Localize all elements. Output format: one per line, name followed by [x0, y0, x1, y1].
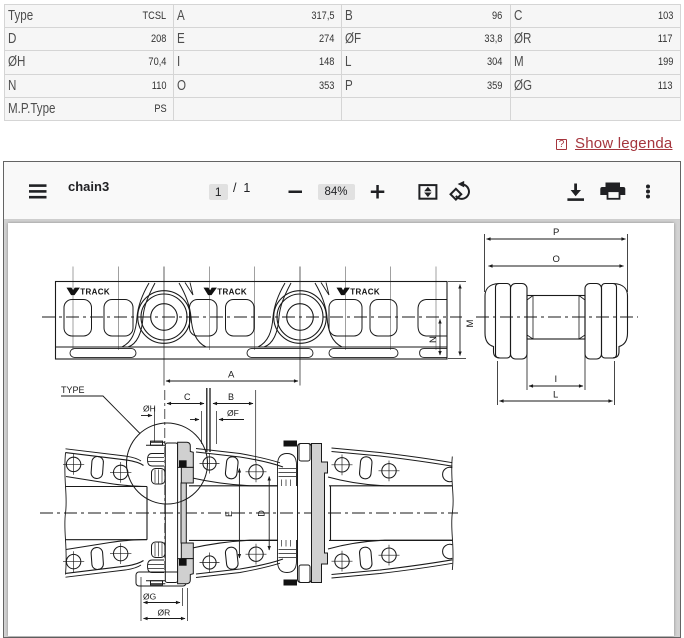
- svg-text:ØG: ØG: [143, 592, 156, 602]
- svg-text:ØH: ØH: [143, 404, 156, 414]
- svg-text:ØF: ØF: [227, 408, 239, 418]
- svg-text:TYPE: TYPE: [61, 385, 85, 395]
- svg-text:D: D: [257, 510, 267, 517]
- svg-text:B: B: [228, 392, 234, 402]
- svg-text:M: M: [465, 319, 476, 327]
- svg-text:C: C: [184, 392, 191, 402]
- svg-text:TRACK: TRACK: [217, 288, 247, 297]
- svg-text:ØR: ØR: [158, 608, 171, 618]
- svg-text:I: I: [555, 374, 558, 385]
- svg-text:N: N: [428, 336, 439, 343]
- svg-text:E: E: [224, 511, 234, 517]
- svg-text:P: P: [553, 227, 559, 238]
- svg-text:A: A: [228, 370, 235, 381]
- svg-text:TRACK: TRACK: [80, 288, 110, 297]
- svg-text:O: O: [553, 254, 560, 265]
- svg-text:L: L: [553, 390, 558, 401]
- svg-text:TRACK: TRACK: [350, 288, 380, 297]
